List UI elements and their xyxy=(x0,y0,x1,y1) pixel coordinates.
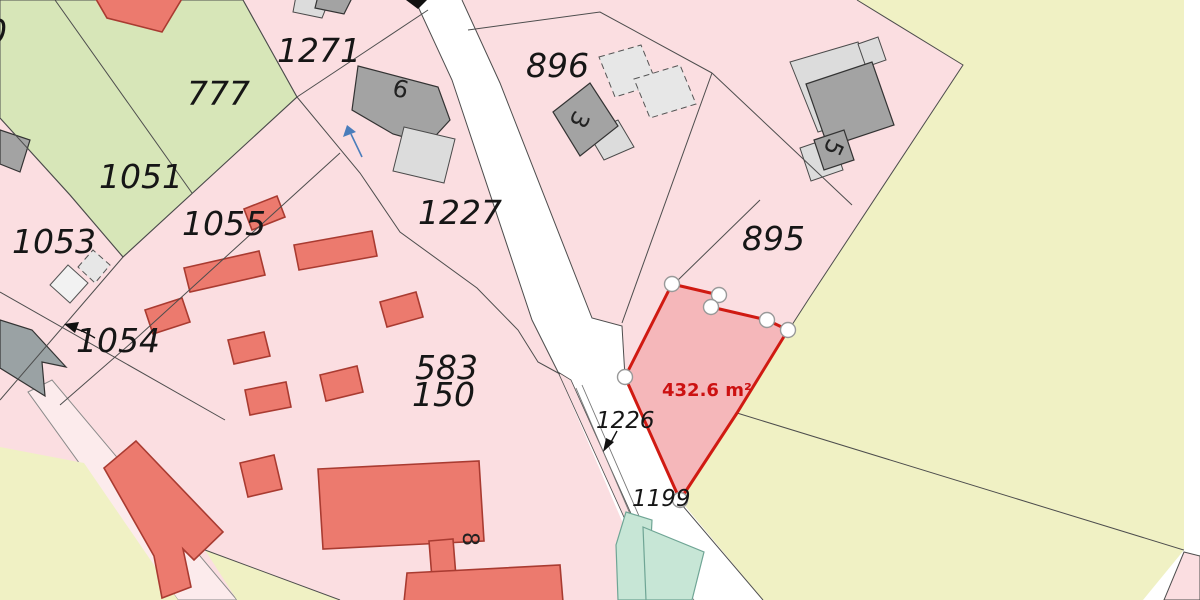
parcel-label-895: 895 xyxy=(742,219,805,258)
map-viewport[interactable]: 0 1271 777 1051 1053 1055 1054 1227 896 … xyxy=(0,0,1200,600)
building-label-8: 8 xyxy=(457,532,482,546)
parcel-label-1055: 1055 xyxy=(182,204,266,243)
vertex-handle[interactable] xyxy=(704,300,719,315)
building-red-small-square[interactable] xyxy=(240,455,282,497)
parcel-label-1053: 1053 xyxy=(12,222,96,261)
vertex-handle[interactable] xyxy=(665,277,680,292)
vertex-handle[interactable] xyxy=(760,313,775,328)
parcel-label-777: 777 xyxy=(187,74,250,113)
parcel-label-896: 896 xyxy=(526,46,589,85)
parcel-label-1227: 1227 xyxy=(418,193,502,232)
parcel-label-partial-0: 0 xyxy=(0,12,7,51)
vertex-handle[interactable] xyxy=(618,370,633,385)
cadastral-map-canvas[interactable]: 0 1271 777 1051 1053 1055 1054 1227 896 … xyxy=(0,0,1200,600)
parcel-label-150: 150 xyxy=(412,375,475,414)
area-measurement-label: 432.6 m² xyxy=(662,380,752,401)
parcel-label-1226: 1226 xyxy=(596,408,655,434)
parcel-label-1054: 1054 xyxy=(76,321,160,360)
vertex-handle[interactable] xyxy=(781,323,796,338)
parcel-label-1199: 1199 xyxy=(632,486,691,512)
parcel-label-1051: 1051 xyxy=(99,157,183,196)
parcel-label-1271: 1271 xyxy=(277,31,361,70)
